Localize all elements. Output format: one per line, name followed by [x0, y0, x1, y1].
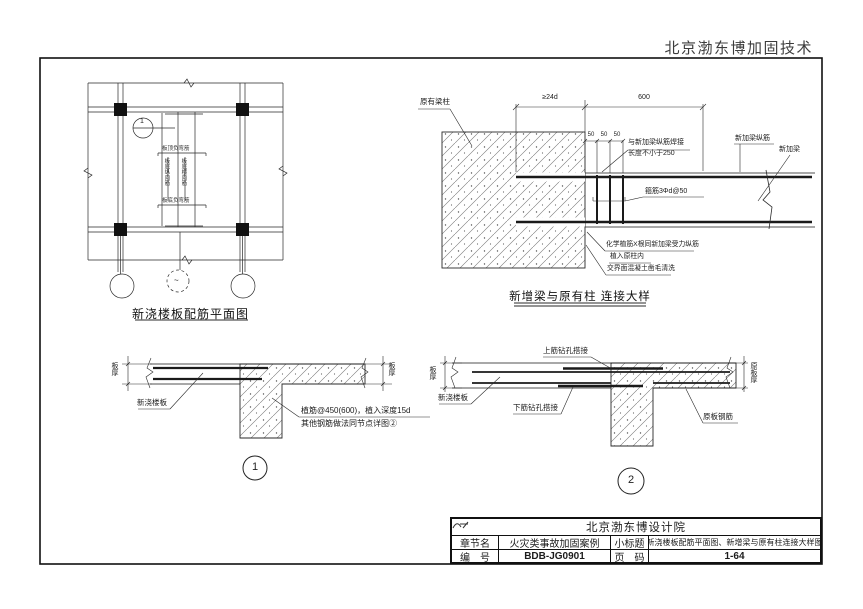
detail1-thickness-left: 板厚 — [110, 362, 118, 376]
detail2-thickness-right: 原板厚 — [749, 362, 757, 383]
dim-beam-length: 600 — [614, 94, 674, 102]
detail1-note-line2: 其他钢筋做法同节点详图② — [301, 419, 397, 428]
dim-anchorage: ≥24d — [520, 94, 580, 102]
title-block-institute-row: 北京渤东博设计院 — [452, 519, 820, 536]
weld-note-line1: 与新加梁纵筋焊接 — [628, 139, 684, 147]
dim-stirrup-1: 50 — [585, 132, 597, 139]
detail2-number: 2 — [619, 474, 643, 486]
plant-note-line2: 植入原柱内 — [610, 253, 644, 261]
page-value: 1-64 — [649, 550, 820, 563]
detail2-new-slab-label: 新浇楼板 — [438, 394, 468, 403]
plan-top-rebar-label: 板顶负弯筋 — [162, 146, 190, 152]
beam-detail-title: 新增梁与原有柱 连接大样 — [505, 288, 655, 304]
detail2-existing-bars-label: 原板钢筋 — [703, 413, 733, 422]
number-label: 编 号 — [452, 550, 499, 563]
subtitle-value: 新浇楼板配筋平面图、新增梁与原有柱连接大样图 — [649, 536, 820, 549]
stirrup-note: 箍筋3Φd@50 — [645, 188, 687, 196]
detail1-new-slab-label: 新浇楼板 — [137, 399, 167, 408]
drawing-sheet: 北京渤东博加固技术 — [0, 0, 863, 609]
existing-column-label: 原有梁柱 — [420, 98, 450, 107]
dim-stirrup-2: 50 — [598, 132, 610, 139]
chapter-label: 章节名 — [452, 536, 499, 549]
plan-left-rebar-label: 板底纵向筋 — [163, 158, 169, 186]
weld-note-line2: 长度不小于250 — [628, 150, 675, 158]
dim-stirrup-3: 50 — [611, 132, 623, 139]
chapter-value: 火灾类事故加固案例 — [499, 536, 611, 549]
detail2-linework — [439, 356, 748, 494]
detail2-thickness-left: 板厚 — [428, 366, 436, 380]
plan-bottom-rebar-label: 板底负弯筋 — [162, 198, 190, 204]
plan-callout-number: 1 — [140, 118, 144, 126]
new-beam-label: 新加梁 — [779, 146, 800, 154]
detail1-thickness-right: 板厚 — [387, 362, 395, 376]
detail2-top-lap-label: 上筋钻孔搭接 — [543, 347, 588, 356]
institute-logo-icon — [452, 519, 470, 530]
detail2-bottom-lap-label: 下筋钻孔搭接 — [513, 404, 558, 413]
plan-axis-bubble-mark: ~ — [174, 276, 179, 285]
plant-note-line1: 化学植筋X根同新加梁受力纵筋 — [606, 241, 699, 249]
plan-title: 新浇楼板配筋平面图 — [128, 305, 253, 322]
plant-note-line3: 交界面混凝土凿毛清洗 — [607, 265, 675, 273]
number-value: BDB-JG0901 — [499, 550, 611, 563]
detail1-linework — [122, 356, 430, 480]
page-label: 页 码 — [611, 550, 649, 563]
subtitle-label: 小标题 — [611, 536, 649, 549]
beam-detail-linework — [418, 100, 815, 306]
detail1-note-line1: 植筋@450(600)，植入深度15d — [301, 406, 411, 415]
new-beam-bars-label: 新加梁纵筋 — [735, 135, 770, 143]
title-block-row-1: 章节名 火灾类事故加固案例 小标题 新浇楼板配筋平面图、新增梁与原有柱连接大样图 — [452, 536, 820, 550]
title-block-row-2: 编 号 BDB-JG0901 页 码 1-64 — [452, 550, 820, 563]
title-block: 北京渤东博设计院 章节名 火灾类事故加固案例 小标题 新浇楼板配筋平面图、新增梁… — [450, 517, 822, 564]
plan-right-rebar-label: 板底横向筋 — [180, 158, 186, 186]
institute-name: 北京渤东博设计院 — [586, 519, 686, 535]
detail1-number: 1 — [243, 461, 267, 473]
